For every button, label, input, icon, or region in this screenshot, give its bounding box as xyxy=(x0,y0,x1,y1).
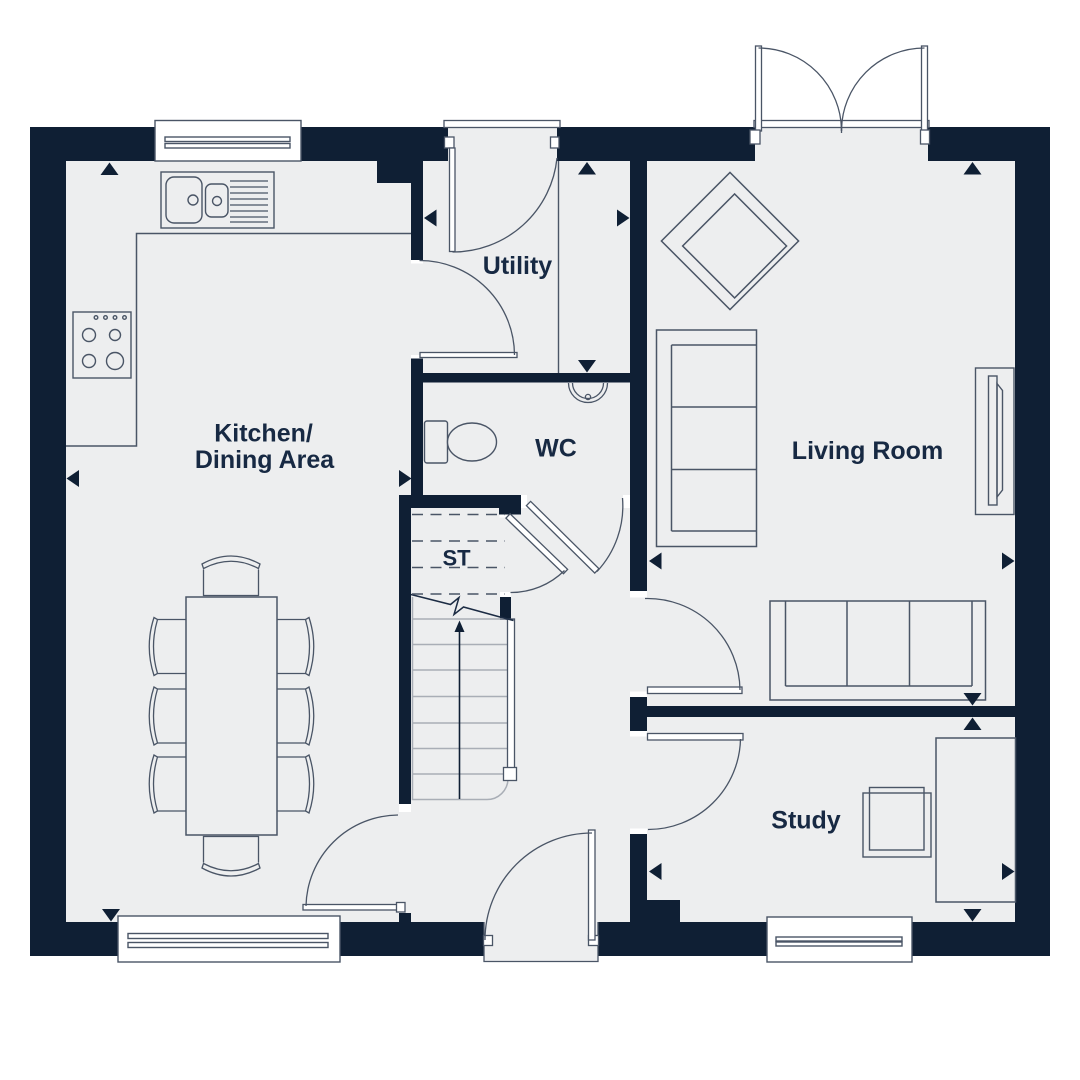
svg-text:Living Room: Living Room xyxy=(792,437,943,465)
svg-text:Dining Area: Dining Area xyxy=(195,446,335,474)
svg-text:ST: ST xyxy=(442,546,471,571)
svg-text:Utility: Utility xyxy=(483,252,553,280)
svg-text:Study: Study xyxy=(771,807,841,835)
svg-text:Kitchen/: Kitchen/ xyxy=(214,420,313,448)
svg-text:WC: WC xyxy=(535,435,577,463)
